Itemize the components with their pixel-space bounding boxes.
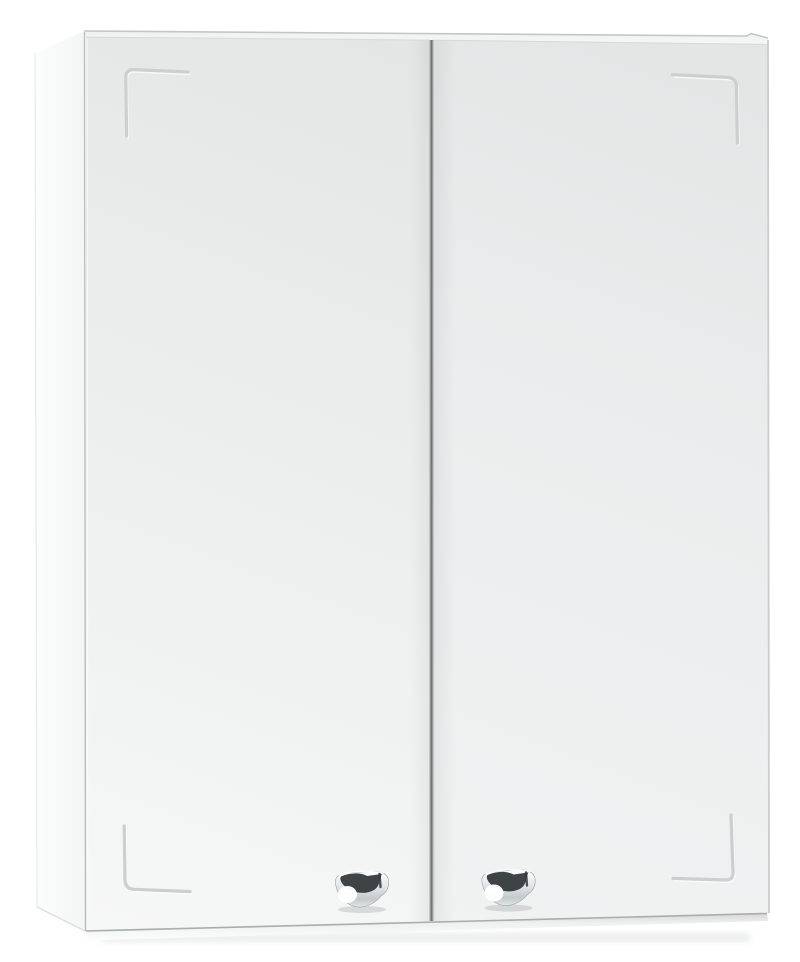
left-door bbox=[86, 37, 430, 932]
cabinet-side-panel bbox=[35, 31, 85, 931]
cabinet-render bbox=[0, 0, 800, 962]
front-right-edge bbox=[768, 40, 769, 913]
right-door-gap-shading bbox=[434, 40, 456, 921]
left-door-edge-highlight bbox=[87, 38, 88, 929]
left-door-gap-shading bbox=[410, 40, 430, 921]
right-door bbox=[433, 40, 768, 922]
product-photo-cabinet bbox=[0, 0, 800, 962]
